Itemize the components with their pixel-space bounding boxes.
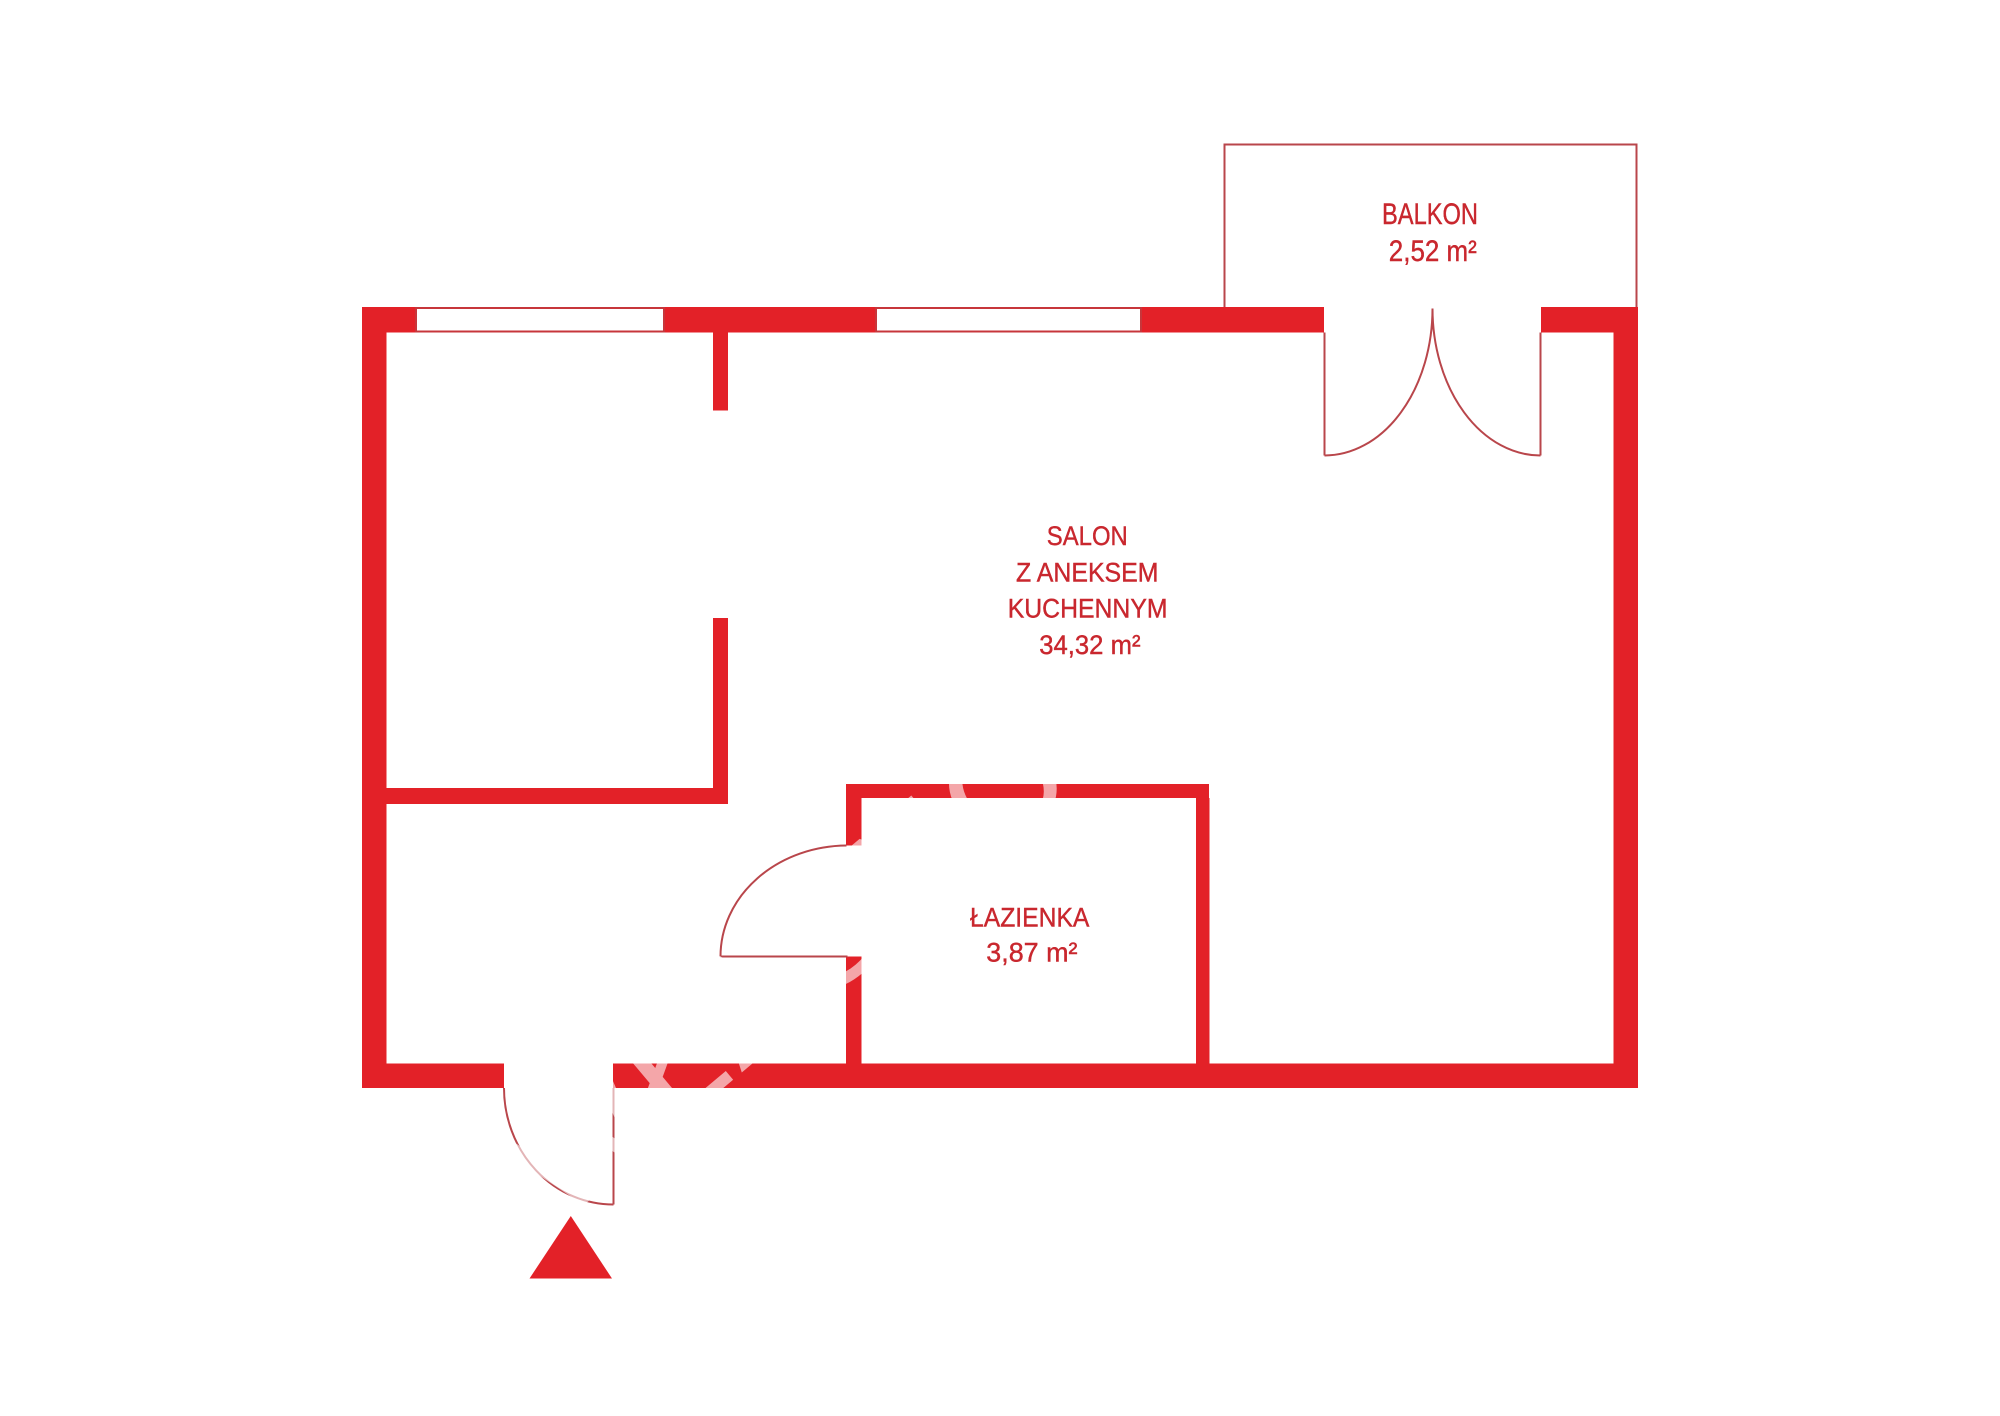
svg-text:Z ANEKSEM: Z ANEKSEM [1016, 557, 1159, 587]
svg-text:BALKON: BALKON [1382, 198, 1478, 231]
svg-text:SALON: SALON [1047, 521, 1128, 551]
svg-text:ŁAZIENKA: ŁAZIENKA [970, 902, 1089, 932]
svg-text:KUCHENNYM: KUCHENNYM [1008, 593, 1168, 623]
svg-text:3,87 m²: 3,87 m² [986, 937, 1077, 967]
svg-text:2,52 m²: 2,52 m² [1389, 235, 1477, 268]
svg-text:34,32 m²: 34,32 m² [1039, 630, 1140, 660]
